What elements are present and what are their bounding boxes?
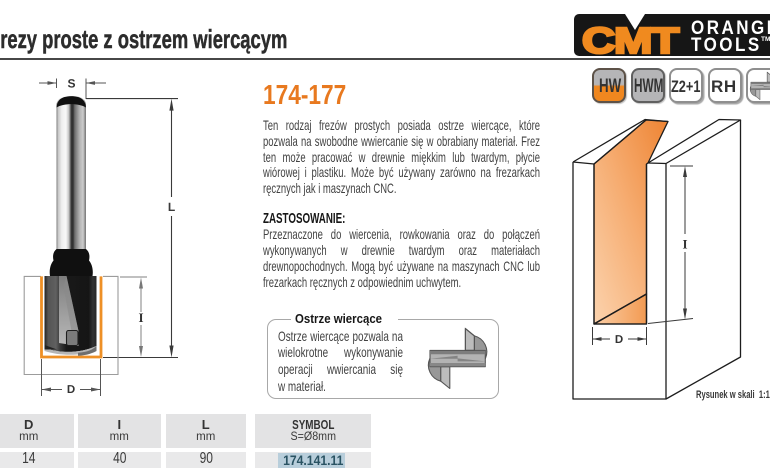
svg-text:S: S	[67, 77, 75, 91]
svg-text:D: D	[615, 334, 623, 346]
svg-text:I: I	[138, 310, 143, 325]
svg-text:I: I	[682, 237, 687, 252]
svg-text:L: L	[168, 200, 175, 214]
svg-text:D: D	[67, 384, 75, 396]
